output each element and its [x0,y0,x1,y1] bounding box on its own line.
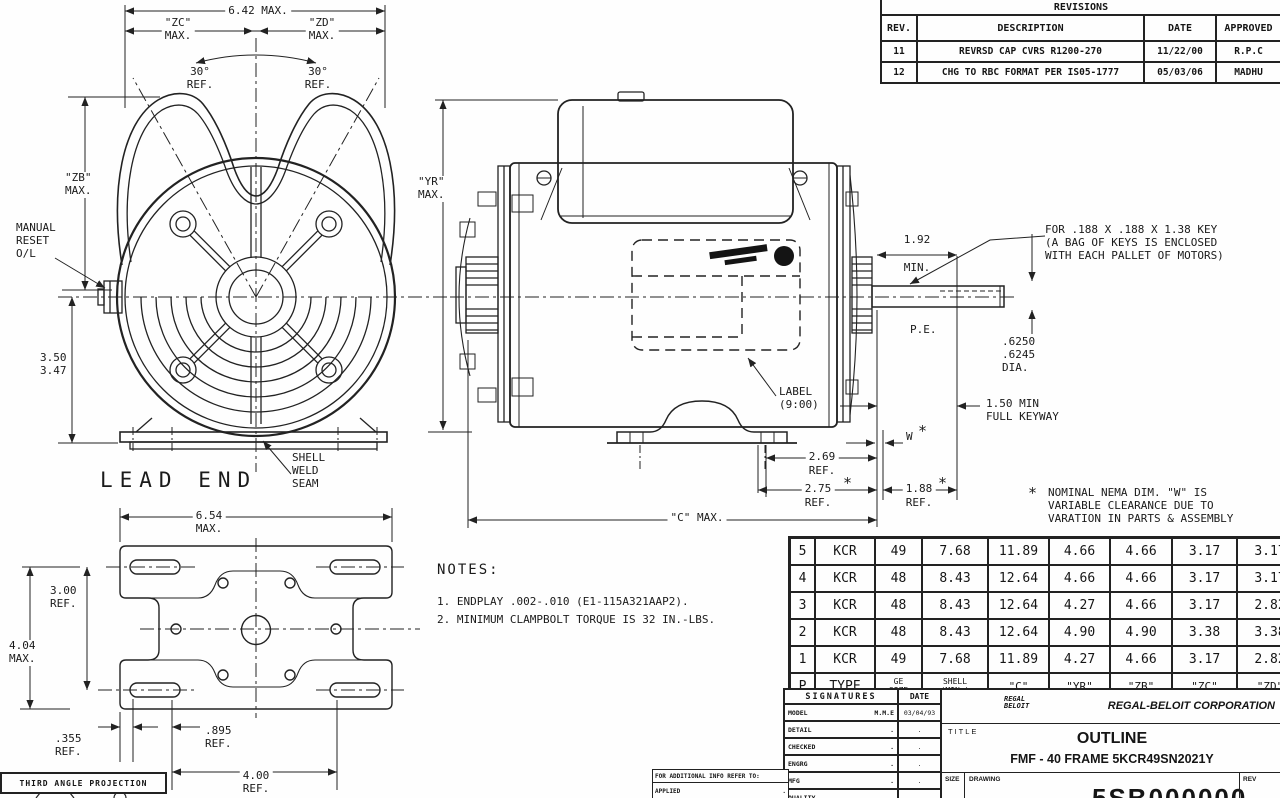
manual-reset-callout: MANUAL RESET O/L [16,222,56,261]
dim-188-asterisk: * [938,476,947,491]
lead-end-dimensions [55,5,385,474]
third-angle-projection-box: THIRD ANGLE PROJECTION [0,772,167,794]
signatures-header: SIGNATURES [784,689,898,704]
applied-label: APPLIED [655,788,680,795]
dim-cell: 3.38 [1237,619,1280,646]
signature-date: . [898,772,941,789]
dim-188: 1.88 [903,483,936,496]
signature-row: CHECKED . [784,738,898,755]
dim-cell: 4.90 [1110,619,1172,646]
dim-cell: 4.66 [1110,538,1172,565]
drawing-number: 5SB000000 [1092,783,1247,798]
engineering-drawing-sheet: 6.42 MAX. "ZC" MAX. "ZD" MAX. 30° REF. 3… [0,0,1280,798]
dim-zc: "ZC" MAX. [162,17,195,43]
dim-cell: 49 [875,646,922,673]
dim-192-min: MIN. [904,262,931,275]
signature-value: . [890,760,894,768]
angle-left: 30° REF. [187,66,214,92]
dim-cell: 3.17 [1172,646,1237,673]
dim-cell: 8.43 [922,592,988,619]
dim-cell: KCR [815,619,875,646]
signature-date: . [898,721,941,738]
projection-label: THIRD ANGLE PROJECTION [20,779,148,788]
dim-654: 6.54 MAX. [193,510,226,536]
signature-label: ENGRG [788,760,808,768]
dim-cell: KCR [815,565,875,592]
footprint-view [98,538,420,718]
shell-weld-seam-callout: SHELL WELD SEAM [292,452,325,491]
signature-row: MODEL M.M.E [784,704,898,721]
dim-275-asterisk: * [843,476,852,491]
dim-cell: 8.43 [922,619,988,646]
logo-text: REGAL BELOIT [1004,696,1029,711]
w-label: W [906,431,913,444]
signature-value: . [890,743,894,751]
dim-cell: 4.90 [1049,619,1110,646]
signature-label: QUALITY [788,794,815,798]
dim-zb: "ZB" MAX. [62,172,95,198]
revision-row-cell: 11/22/00 [1144,41,1216,62]
revision-row-cell: 12 [881,62,917,83]
dim-cell: 4.66 [1049,565,1110,592]
dim-cell: 3.38 [1172,619,1237,646]
date-col-header: DATE [1144,15,1216,41]
signature-label: MFG [788,777,800,785]
dim-cell: 48 [875,592,922,619]
drawing-subtitle: FMF - 40 FRAME 5KCR49SN2021Y [942,752,1280,766]
lead-end-view [58,38,455,472]
description-col-header: DESCRIPTION [917,15,1144,41]
keyway-callout: 1.50 MIN FULL KEYWAY [986,398,1059,424]
dim-cell: 2.82 [1237,646,1280,673]
dim-cell: 3.17 [1172,592,1237,619]
signature-label: DETAIL [788,726,811,734]
dim-cell: 48 [875,565,922,592]
dim-cell: 3.17 [1172,565,1237,592]
dim-cell: KCR [815,646,875,673]
key-note: FOR .188 X .188 X 1.38 KEY (A BAG OF KEY… [1045,224,1224,263]
dim-cell: 5 [790,538,815,565]
drawing-title: OUTLINE [942,730,1280,748]
dim-cell: 3.17 [1172,538,1237,565]
signature-row: ENGRG . [784,755,898,772]
dim-400: 4.00 REF. [240,770,273,796]
dim-192: 1.92 [901,234,934,247]
dim-cell: 2.82 [1237,592,1280,619]
dim-cell: 4.66 [1110,646,1172,673]
revision-row-cell: 11 [881,41,917,62]
dim-cell: 12.64 [988,592,1049,619]
signature-date: . [898,738,941,755]
applied-value: . [782,788,786,795]
dim-cell: 4.27 [1049,592,1110,619]
dim-275-ref: REF. [805,497,832,510]
dim-404: 4.04 MAX. [6,640,39,666]
size-label: SIZE [945,776,959,783]
revision-row-cell: MADHU [1216,62,1280,83]
signature-row: QUALITY . [784,789,898,798]
dia-callout: .6250 .6245 DIA. [1002,336,1035,375]
revision-row-cell: CHG TO RBC FORMAT PER IS05-1777 [917,62,1144,83]
dim-cell: 12.64 [988,619,1049,646]
signature-date: 03/04/93 [898,704,941,721]
note-2: 2. MINIMUM CLAMPBOLT TORQUE IS 32 IN.-LB… [437,614,715,627]
dim-275: 2.75 [802,483,835,496]
dim-cell: 11.89 [988,538,1049,565]
drawing-number-label: DRAWING [969,776,1000,783]
signature-value: M.M.E [874,709,894,717]
dim-300: 3.00 REF. [47,585,80,611]
additional-info-text: FOR ADDITIONAL INFO REFER TO: [655,773,760,780]
view-title-lead-end: LEAD END [100,468,257,493]
dim-cell: 48 [875,619,922,646]
dim-188-ref: REF. [906,497,933,510]
dim-yr: "YR" MAX. [415,176,448,202]
side-view [450,92,1014,472]
dim-cell: 1 [790,646,815,673]
signatures-block: SIGNATURES DATE MODEL M.M.E 03/04/93 DET… [783,688,942,798]
rev-col-header: REV. [881,15,917,41]
signature-date: . [898,789,941,798]
approved-col-header: APPROVED [1216,15,1280,41]
nema-note-asterisk: * [1028,486,1037,501]
signature-value: . [890,777,894,785]
signature-label: MODEL [788,709,808,717]
dim-c-max: "C" MAX. [668,512,727,525]
signature-row: MFG . [784,772,898,789]
dim-355: .355 REF. [55,733,82,759]
signature-value: . [890,726,894,734]
revisions-title: REVISIONS [881,0,1280,15]
dim-width-top: 6.42 MAX. [225,5,291,18]
title-block: REGAL BELOIT REGAL-BELOIT CORPORATION TI… [940,688,1280,798]
revision-row-cell: REVRSD CAP CVRS R1200-270 [917,41,1144,62]
dim-cell: 11.89 [988,646,1049,673]
dim-cell: 8.43 [922,565,988,592]
company-name: REGAL-BELOIT CORPORATION [1090,700,1275,712]
w-asterisk: * [918,424,927,439]
dim-cell: 12.64 [988,565,1049,592]
dim-height: 3.50 3.47 [40,352,67,378]
dim-cell: 3 [790,592,815,619]
dim-cell: 4.66 [1110,592,1172,619]
dim-cell: 7.68 [922,646,988,673]
dim-cell: 4.66 [1110,565,1172,592]
notes-heading: NOTES: [437,562,500,579]
dim-cell: 4.66 [1049,538,1110,565]
dim-cell: KCR [815,592,875,619]
dimension-table: 5 KCR 49 7.68 11.89 4.66 4.66 3.17 3.17 … [788,536,1280,702]
dim-cell: 3.17 [1237,565,1280,592]
dim-cell: 4 [790,565,815,592]
signature-date: . [898,755,941,772]
dim-zd: "ZD" MAX. [306,17,339,43]
dim-269: 2.69 [806,451,839,464]
dim-cell: 49 [875,538,922,565]
rev-label: REV [1243,776,1256,783]
note-1: 1. ENDPLAY .002-.010 (E1-115A321AAP2). [437,596,689,609]
signature-row: DETAIL . [784,721,898,738]
label-900-callout: LABEL (9:00) [779,386,819,412]
nema-note: NOMINAL NEMA DIM. "W" IS VARIABLE CLEARA… [1048,487,1233,526]
dim-cell: 4.27 [1049,646,1110,673]
applied-box: APPLIED . [652,782,789,798]
revision-row-cell: 05/03/06 [1144,62,1216,83]
revision-row-cell: R.P.C [1216,41,1280,62]
dim-cell: 3.17 [1237,538,1280,565]
angle-right: 30° REF. [305,66,332,92]
dim-269-ref: REF. [809,465,836,478]
signature-value: . [890,794,894,798]
revisions-table: REVISIONS REV. DESCRIPTION DATE APPROVED… [880,0,1280,84]
dim-895: .895 REF. [205,725,232,751]
dim-cell: 7.68 [922,538,988,565]
signature-label: CHECKED [788,743,815,751]
dim-cell: 2 [790,619,815,646]
dim-cell: KCR [815,538,875,565]
pe-label: P.E. [910,324,937,337]
side-view-dimensions [428,100,1045,528]
signatures-date-header: DATE [898,689,941,704]
